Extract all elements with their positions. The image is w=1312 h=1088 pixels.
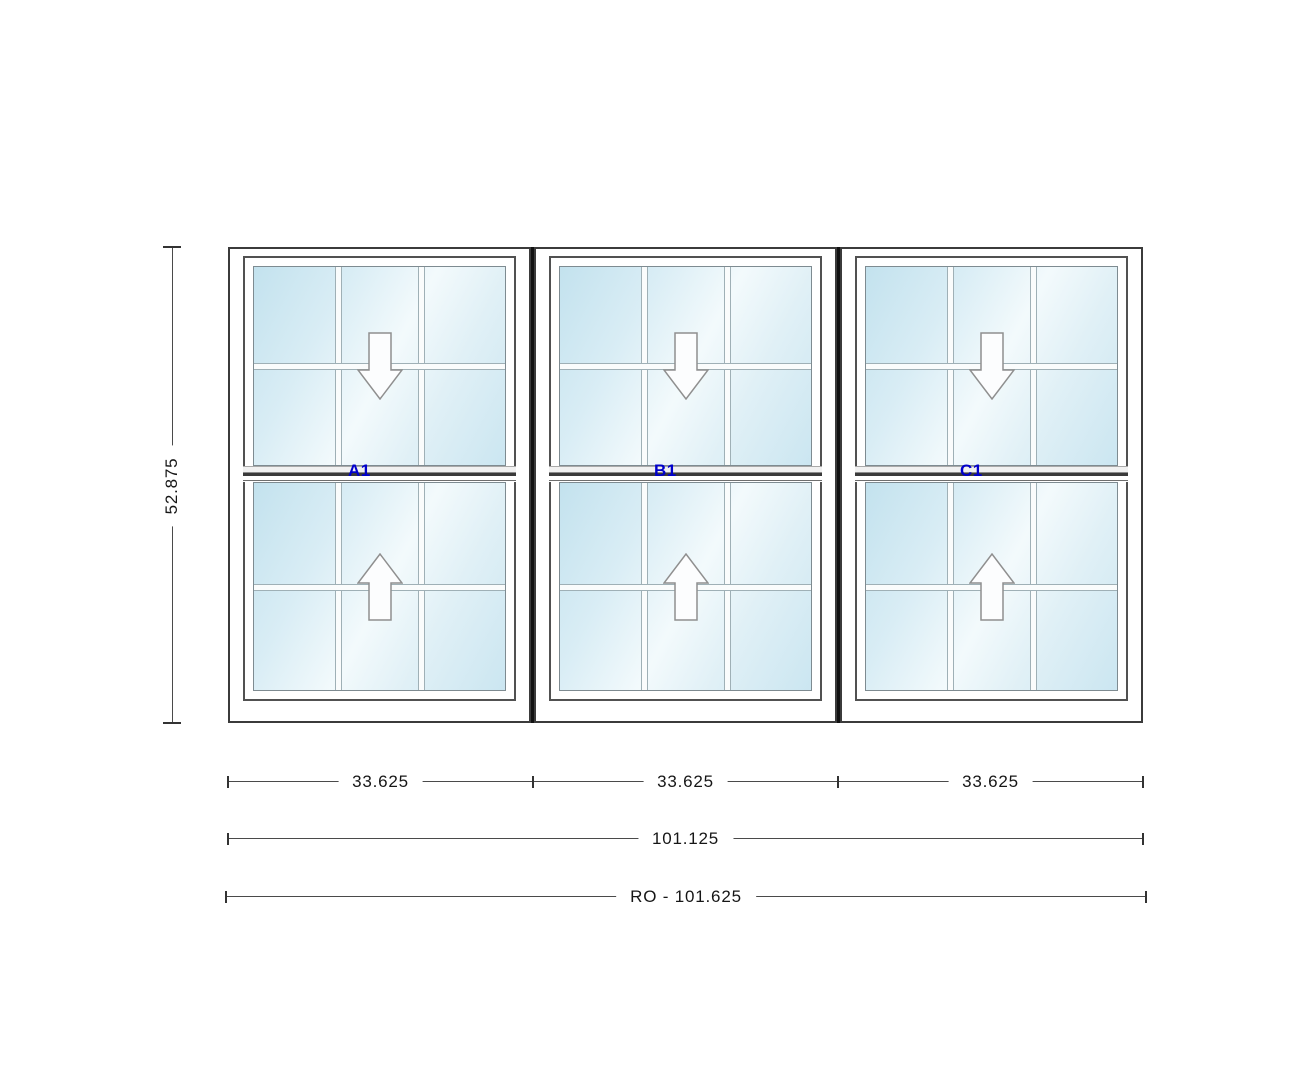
unit-width-dimension: 33.625 [228,781,533,782]
slide-up-arrow-icon [357,553,403,621]
unit-label-a1: A1 [348,462,371,479]
lower-sash [855,482,1128,701]
upper-sash-glass [253,266,506,466]
slide-down-arrow-icon [357,332,403,400]
unit-width-value: 33.625 [948,772,1033,792]
dimension-tick [163,722,181,724]
slide-down-arrow-icon [969,332,1015,400]
lower-sash [243,482,516,701]
check-rail [855,466,1128,482]
window-unit-c1: C1 [840,247,1143,723]
upper-sash [243,256,516,466]
rough-opening-value: RO - 101.625 [616,887,756,907]
slide-up-arrow-icon [663,553,709,621]
unit-width-dimension: 33.625 [533,781,838,782]
dimension-tick [163,246,181,248]
unit-label-c1: C1 [960,462,983,479]
slide-up-arrow-icon [969,553,1015,621]
window-unit-a1: A1 [228,247,531,723]
window-unit-b1: B1 [534,247,837,723]
unit-width-value: 33.625 [338,772,423,792]
lower-sash [549,482,822,701]
window-elevation-drawing: 52.875 [0,0,1312,1088]
check-rail [243,466,516,482]
height-dimension-value: 52.875 [162,446,182,527]
total-width-dimension: 101.125 [228,838,1143,839]
lower-sash-glass [559,482,812,691]
unit-label-b1: B1 [654,462,677,479]
upper-sash [549,256,822,466]
upper-sash [855,256,1128,466]
upper-sash-glass [865,266,1118,466]
total-width-value: 101.125 [638,829,733,849]
window-assembly: A1 [228,247,1143,723]
lower-sash-glass [865,482,1118,691]
lower-sash-glass [253,482,506,691]
slide-down-arrow-icon [663,332,709,400]
upper-sash-glass [559,266,812,466]
check-rail [549,466,822,482]
unit-width-value: 33.625 [643,772,728,792]
rough-opening-dimension: RO - 101.625 [226,896,1146,897]
unit-width-dimension: 33.625 [838,781,1143,782]
